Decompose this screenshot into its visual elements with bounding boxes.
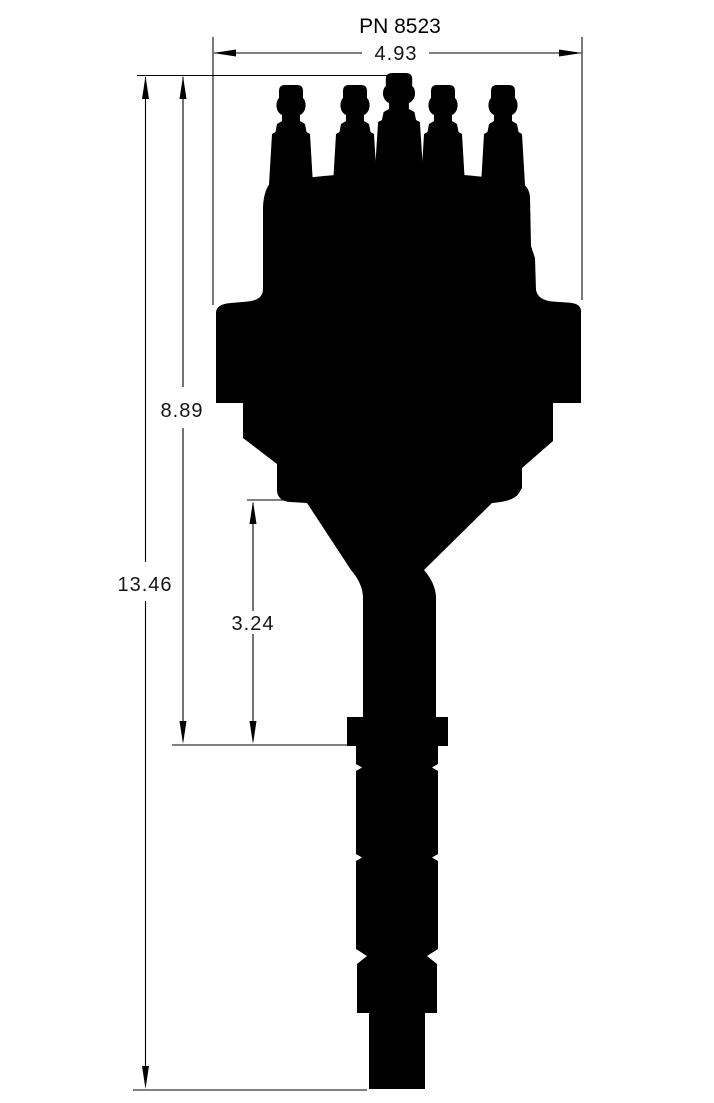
dimension-lower-height: 3.24 — [232, 501, 275, 744]
arrowhead-down — [180, 721, 187, 744]
arrowhead-down — [142, 1066, 149, 1089]
cap-tower-5 — [481, 85, 525, 185]
part-number-title: PN 8523 — [359, 15, 441, 38]
arrowhead-right — [559, 50, 582, 57]
dimension-upper-height: 8.89 — [161, 76, 204, 744]
drawing-canvas: 4.93 13.46 8.89 3.24 PN 8523 — [0, 0, 714, 1103]
arrowhead-up — [250, 501, 257, 524]
cap-tower-2 — [333, 85, 377, 185]
arrowhead-up — [180, 76, 187, 99]
dimension-overall-width: 4.93 — [213, 43, 582, 65]
dim-value-total-height: 13.46 — [117, 574, 172, 596]
arrowhead-down — [250, 721, 257, 744]
cap-tower-4 — [421, 85, 465, 185]
technical-drawing: 4.93 13.46 8.89 3.24 PN 8523 — [0, 0, 714, 1103]
distributor-silhouette — [216, 73, 581, 1089]
arrowhead-up — [142, 76, 149, 99]
dimension-total-height: 13.46 — [117, 76, 172, 1089]
dim-value-overall-width: 4.93 — [375, 43, 418, 65]
arrowhead-left — [213, 50, 236, 57]
cap-tower-center — [375, 73, 423, 173]
dim-value-lower-height: 3.24 — [232, 613, 275, 635]
dim-value-upper-height: 8.89 — [161, 400, 204, 422]
cap-tower-1 — [269, 85, 313, 185]
